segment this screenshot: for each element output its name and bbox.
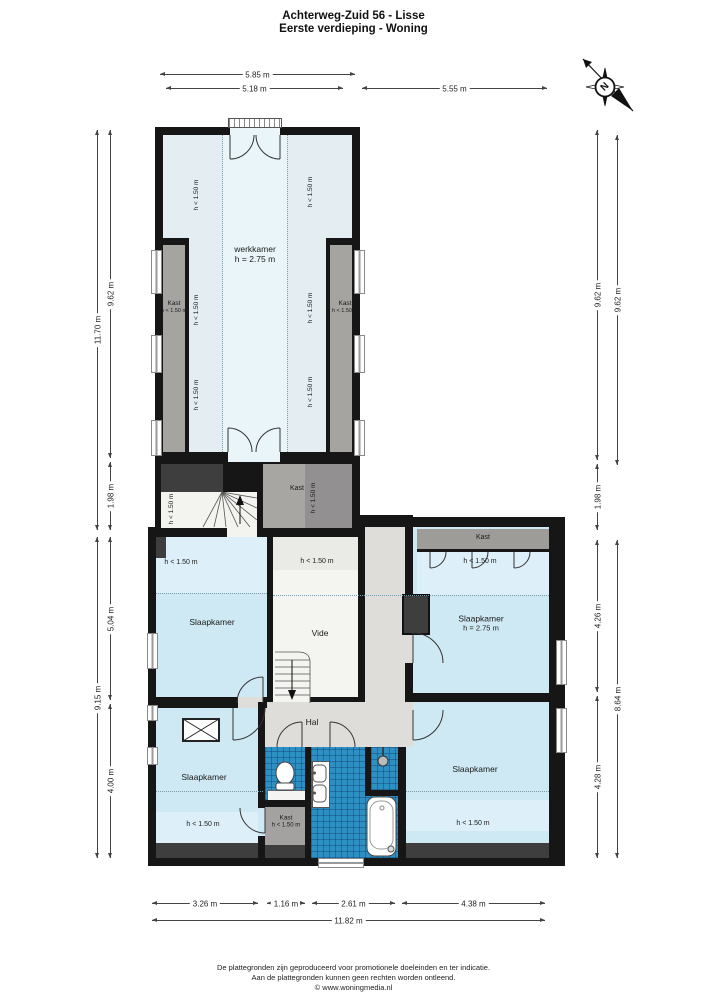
low-ceiling-line: [222, 135, 223, 452]
storage-dark-zone: [161, 464, 223, 492]
window: [354, 250, 365, 294]
dim-bottom-total: 11.82 m: [152, 920, 545, 921]
window: [147, 747, 158, 765]
label-slaapkamer-rechtsboven: Slaapkamerh = 2.75 m: [458, 613, 503, 632]
room-hal: [267, 702, 413, 747]
window: [151, 420, 162, 456]
window: [147, 633, 158, 669]
room-slaapkamer-rechtsonder: [413, 702, 549, 747]
label-low-zone: h < 1.50 m: [193, 380, 201, 411]
label-low-zone: h < 1.50 m: [164, 559, 197, 567]
dark-corner: [156, 537, 166, 558]
vanity: [312, 761, 330, 808]
label-kast-top: Kast: [476, 534, 490, 542]
stair-opening: [227, 527, 257, 537]
closet-strip-left: [163, 245, 185, 452]
wall: [185, 245, 189, 452]
label-low-zone: h < 1.50 m: [193, 180, 201, 211]
dim-top-right: 5.55 m: [362, 88, 547, 89]
dim-top-outer: 5.85 m: [160, 74, 355, 75]
dim-right-inner-lower-bottom: 4.28 m: [597, 696, 598, 858]
wall: [163, 238, 189, 245]
label-kast-right: Kasth < 1.50 m: [332, 300, 358, 314]
compass-north-arrow: [583, 59, 592, 68]
window: [151, 335, 162, 373]
shower: [371, 747, 398, 790]
wall: [326, 238, 352, 245]
dim-right-inner-landing: 1.98 m: [597, 464, 598, 530]
footer-credit: © www.woningmedia.nl: [0, 983, 707, 993]
window: [318, 858, 364, 868]
wall: [398, 747, 406, 858]
dim-left-inner-upper: 9.62 m: [110, 130, 111, 458]
footer-disclaimer-line1: De plattegronden zijn geproduceerd voor …: [0, 963, 707, 973]
room-kast-landing-left: [263, 464, 305, 528]
window: [556, 640, 567, 685]
label-low-zone: h < 1.50 m: [307, 377, 315, 408]
wall: [267, 537, 273, 705]
window: [354, 335, 365, 373]
label-low-zone: h < 1.50 m: [456, 820, 489, 828]
low-ceiling-line: [287, 135, 288, 452]
compass-tail: [611, 88, 633, 111]
deck-edge: [228, 118, 282, 128]
window: [354, 420, 365, 456]
dim-bottom-1: 3.26 m: [152, 903, 258, 904]
low-ceiling-line: [273, 595, 549, 596]
label-slaapkamer-linksonder: Slaapkamer: [181, 772, 226, 782]
dim-right-inner-upper: 9.62 m: [597, 130, 598, 460]
door-opening: [258, 808, 265, 836]
dim-right-outer-lower: 8.64 m: [617, 540, 618, 858]
label-low-zone: h < 1.50 m: [300, 558, 333, 566]
wall: [258, 800, 307, 807]
bath-zone: [365, 796, 398, 858]
low-ceiling-line: [406, 791, 549, 792]
dim-left-inner-lower-bottom: 4.00 m: [110, 704, 111, 858]
label-low-zone: h < 1.50 m: [307, 177, 315, 208]
dim-bottom-4: 4.38 m: [402, 903, 545, 904]
label-low-zone: h < 1.50 m: [186, 821, 219, 829]
dim-bottom-3: 2.61 m: [312, 903, 395, 904]
page-title-line2: Eerste verdieping - Woning: [0, 23, 707, 35]
dim-right-inner-lower-top: 4.26 m: [597, 540, 598, 692]
label-slaapkamer-links: Slaapkamer: [189, 617, 234, 627]
door-opening: [228, 452, 280, 462]
label-kast-landing-h: h < 1.50 m: [310, 483, 318, 514]
label-kast-badkamer: Kasth < 1.50 m: [272, 815, 301, 830]
dim-left-inner-landing: 1.98 m: [110, 462, 111, 530]
footer-disclaimer-line2: Aan de plattegronden kunnen geen rechten…: [0, 973, 707, 983]
label-landing-low: h < 1.50 m: [168, 494, 176, 525]
label-vide: Vide: [312, 628, 329, 638]
roof-slope-band: [265, 845, 305, 858]
label-kast-left: Kasth < 1.50 m: [161, 300, 187, 314]
floorplan-page: Achterweg-Zuid 56 - Lisse Eerste verdiep…: [0, 0, 707, 1000]
dim-right-outer-upper: 9.62 m: [617, 135, 618, 465]
roof-slope-band: [406, 843, 549, 858]
door-opening: [405, 633, 413, 663]
room-werkkamer-center: [223, 135, 287, 452]
dim-top-inner: 5.18 m: [166, 88, 343, 89]
label-low-zone: h < 1.50 m: [193, 295, 201, 326]
door-opening: [230, 127, 280, 135]
shaft-dark-zone: [402, 594, 430, 635]
label-werkkamer: werkkamerh = 2.75 m: [234, 244, 276, 264]
label-low-zone: h < 1.50 m: [307, 293, 315, 324]
dim-left-inner-lower-top: 5.04 m: [110, 537, 111, 700]
window: [556, 708, 567, 753]
wall: [405, 693, 557, 702]
wall: [326, 245, 330, 452]
roof-slope-band: [156, 843, 263, 858]
closet-strip-right: [330, 245, 352, 452]
low-ceiling-line: [156, 593, 267, 594]
window: [151, 250, 162, 294]
label-low-zone: h < 1.50 m: [463, 558, 496, 566]
low-ceiling-line: [156, 791, 263, 792]
dim-left-outer-upper: 11.70 m: [97, 130, 98, 530]
label-kast-landing: Kast: [290, 485, 304, 493]
compass-north-label: N: [599, 81, 612, 94]
dim-bottom-2: 1.16 m: [267, 903, 305, 904]
label-slaapkamer-rechtsonder: Slaapkamer: [452, 764, 497, 774]
label-hal: Hal: [306, 717, 319, 727]
compass-axis: [583, 59, 633, 111]
page-title-line1: Achterweg-Zuid 56 - Lisse: [0, 10, 707, 22]
window: [147, 705, 158, 721]
dim-left-outer-lower: 9.15 m: [97, 537, 98, 858]
